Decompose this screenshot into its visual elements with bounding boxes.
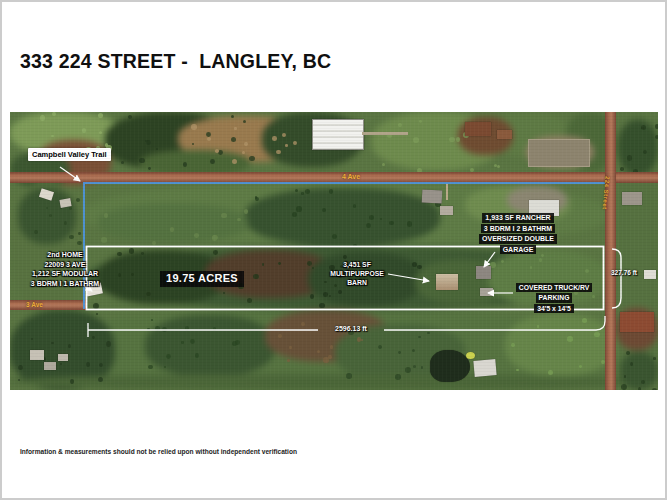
rancher-label: 1,933 SF RANCHER 3 BDRM I 2 BATHRM OVERS… [460,213,576,254]
aerial-map: Campbell Valley Trail 4 Ave 3 Ave 224 St… [10,112,658,390]
parking-label: COVERED TRUCK/RV PARKING 34'5 x 14'5 [500,283,608,313]
barn-arrow [388,274,429,281]
trail-arrow [60,167,80,181]
page-title: 333 224 STREET - LANGLEY, BC [20,50,331,73]
frontage-measure-right-hook [596,316,605,330]
road-label-3ave: 3 Ave [26,301,43,308]
depth-measure-bracket [612,249,621,308]
frontage-measurement: 2596.13 ft [320,325,382,332]
disclaimer-text: Information & measurements should not be… [20,448,297,455]
depth-measurement: 327.76 ft [606,269,642,276]
second-home-label: 2nd HOME 22009 3 AVE 1,212 SF MODULAR 3 … [10,250,120,288]
barn-label: 3,451 SF MULTIPURPOSE BARN [325,260,389,287]
rancher-arrow [484,252,495,267]
trail-label: Campbell Valley Trail [28,148,111,161]
listing-flyer: 333 224 STREET - LANGLEY, BC [0,0,667,500]
acreage-label: 19.75 ACRES [160,271,244,287]
road-label-4ave: 4 Ave [342,173,360,180]
